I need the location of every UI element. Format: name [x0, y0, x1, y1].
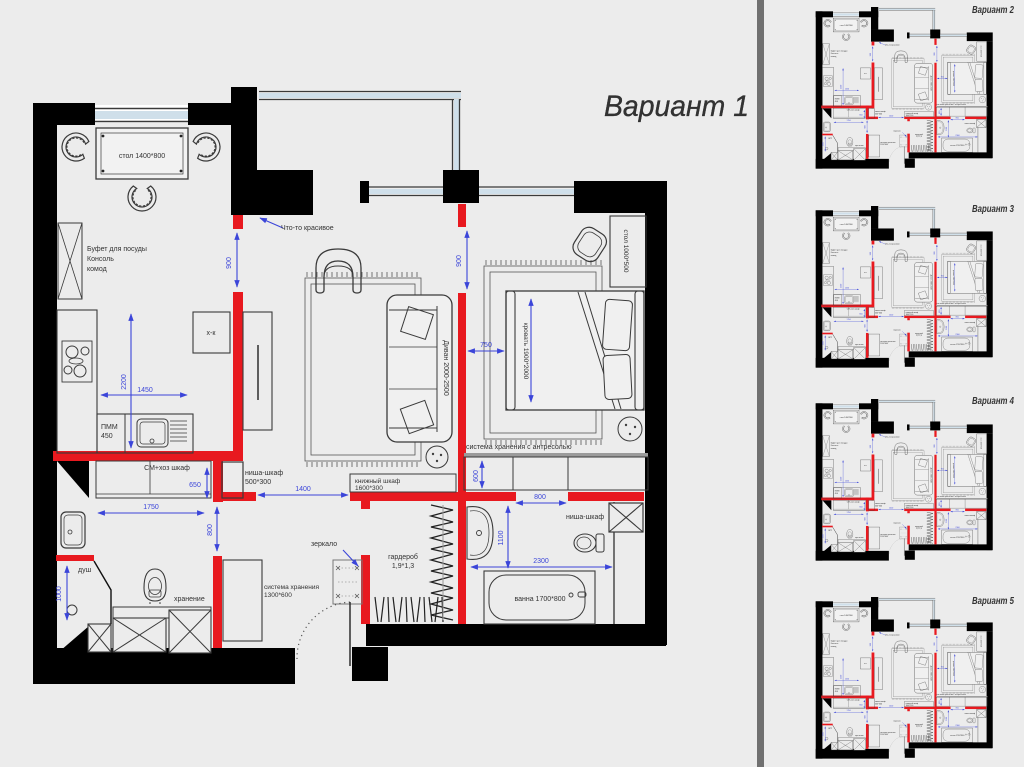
- svg-text:Вариант 1: Вариант 1: [604, 90, 749, 123]
- svg-text:Вариант 4: Вариант 4: [972, 395, 1014, 407]
- svg-text:Вариант 5: Вариант 5: [972, 595, 1014, 607]
- svg-text:Вариант 2: Вариант 2: [972, 4, 1014, 16]
- svg-text:Вариант 3: Вариант 3: [972, 203, 1014, 215]
